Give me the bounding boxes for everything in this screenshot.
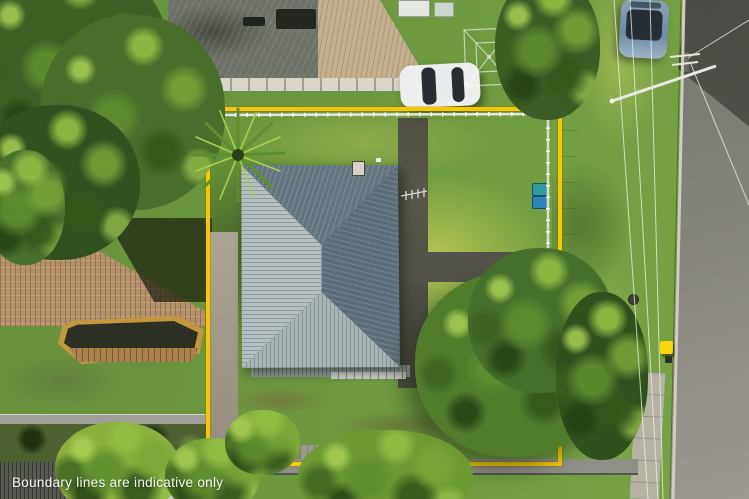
hydrant-marker — [660, 341, 673, 354]
blue-car — [619, 0, 670, 59]
white-car-rear-glass — [451, 67, 465, 103]
chimney-shadow — [243, 17, 265, 26]
chimney-shadow-2 — [276, 9, 316, 29]
glasshouse — [434, 2, 454, 17]
boundary-disclaimer-text: Boundary lines are indicative only — [12, 475, 223, 490]
large-tree-canopy-3 — [556, 292, 648, 460]
blue-car-roofrack — [629, 1, 661, 9]
white-car — [399, 62, 481, 109]
neighbour-deck-boards — [70, 348, 198, 362]
power-pole — [681, 52, 689, 72]
hydrant-base — [665, 356, 672, 363]
blue-car-glass — [625, 9, 663, 41]
bottom-tree-over-corner — [225, 410, 300, 475]
manhole-cover — [628, 294, 639, 305]
aerial-photo: Boundary lines are indicative only — [0, 0, 749, 499]
garden-shed — [398, 0, 430, 17]
white-car-roof — [435, 68, 453, 102]
